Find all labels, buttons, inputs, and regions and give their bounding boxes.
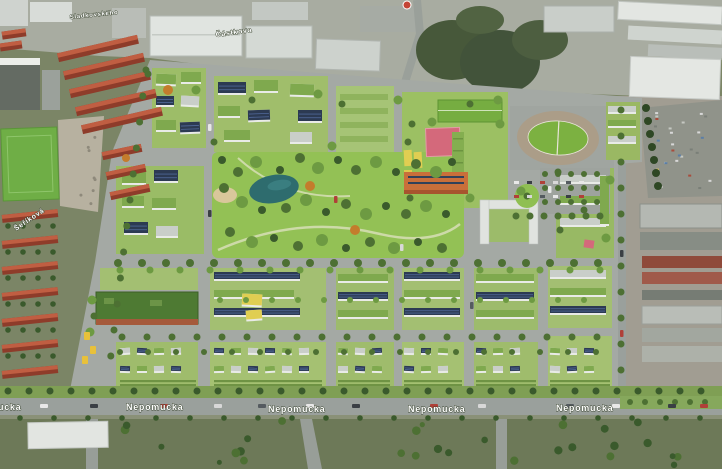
tree [357,267,364,274]
car [620,250,624,257]
building [404,272,460,281]
tree [397,349,403,355]
tree [319,334,326,341]
gravel [93,136,96,139]
building [476,310,534,319]
building [246,309,263,321]
building [550,366,560,374]
tree [278,388,285,395]
tree [450,259,458,267]
tree [370,156,382,168]
parked-car [579,181,584,184]
tree [593,349,599,355]
tree [219,334,226,341]
tree [107,353,114,360]
tree [466,194,475,203]
tree [569,334,576,341]
gravel [79,194,82,197]
tree [581,185,587,191]
tree [618,107,625,114]
tree [618,315,625,322]
scrap-car [690,148,693,150]
tree [606,452,614,460]
tree [123,422,131,430]
tree [240,457,248,465]
car [478,404,486,408]
building [156,74,176,87]
tree [391,415,397,421]
tree [207,267,214,274]
tree [618,367,625,374]
tree [270,234,278,242]
tree [670,453,676,459]
tree [50,275,56,281]
tree [627,399,633,405]
tree [411,159,421,169]
tree [412,452,420,460]
tree [597,267,604,274]
tree [341,199,351,209]
tree [544,334,551,341]
tree [434,445,442,453]
tree [133,145,140,152]
aerial-masterplan-view: Nepomucka Nepomucka Nepomucka Nepomucka … [0,0,722,469]
tree [420,200,432,212]
car [548,186,552,193]
tree [572,388,579,395]
tree [17,415,23,421]
tree [215,388,222,395]
tree [618,289,625,296]
scrap-car [671,143,674,145]
building [180,122,200,135]
tree [394,96,403,105]
tree [503,297,509,303]
tree [293,241,303,251]
tree [474,259,482,267]
tree [117,275,124,282]
tree [594,259,602,267]
tree [568,199,574,205]
tree [509,349,515,355]
tree [581,207,588,214]
tree [671,462,677,468]
car [620,330,624,337]
tree [425,297,431,303]
tree [409,121,416,128]
hedge [404,380,462,382]
tree [657,399,663,405]
tree [276,166,284,174]
building [493,348,503,355]
hedge [476,380,536,382]
tree [341,349,347,355]
tree [537,349,543,355]
car [258,404,266,408]
building [338,292,388,301]
tree [20,275,26,281]
building [404,348,414,355]
tree [243,297,249,303]
tree [493,415,499,421]
scrap-car [669,127,672,129]
hedge [476,384,536,386]
tree [697,415,703,421]
tree [269,334,276,341]
tree [634,419,642,427]
tree [428,118,437,127]
tree [594,334,601,341]
tree [120,249,127,256]
tree [498,259,506,267]
tree [546,259,554,267]
tree [35,353,41,359]
building [181,96,200,108]
tree [145,349,151,355]
building [152,198,176,210]
tree [561,415,567,421]
tree [162,259,170,267]
tree [507,267,514,274]
building [476,274,534,283]
tree [467,388,474,395]
tree [618,159,625,166]
tree [35,249,41,255]
tree [557,227,564,234]
tree [236,196,248,208]
tree [594,171,600,177]
tree [139,93,146,100]
tree [305,181,315,191]
tree [233,167,243,177]
tree [341,388,348,395]
tree [407,195,414,202]
tree [629,415,635,421]
tree [299,388,306,395]
street-label-nepomucka: Nepomucka [408,404,466,414]
tree [509,388,516,395]
tree [555,199,561,205]
tree [581,297,587,303]
tree [114,301,121,308]
tree [114,259,122,267]
tree [50,223,56,229]
tree [295,297,301,303]
tree [110,388,117,395]
tree [320,388,327,395]
hedge [338,384,390,386]
tree [614,388,621,395]
scrap-car [664,162,667,164]
tree [459,415,465,421]
tree [542,185,548,191]
tree [618,185,625,192]
tree [5,275,11,281]
tree [158,444,164,450]
tree [594,185,600,191]
tree [201,349,207,355]
tree [314,90,323,99]
building [248,110,270,123]
tree [258,206,266,214]
tree [144,334,151,341]
building [338,274,388,283]
tree [258,259,266,267]
tree [447,267,454,274]
side-street [496,419,507,469]
scrap-car [701,137,704,139]
tree [618,237,625,244]
tree [565,349,571,355]
tree [481,437,488,444]
tree [527,213,534,220]
tree [249,97,256,104]
tree [186,259,194,267]
tree [285,349,291,355]
scrap-car [697,131,700,133]
hedge [550,384,610,386]
car [352,404,360,408]
building [338,310,388,319]
tree [300,194,312,206]
tree [169,334,176,341]
tree [494,334,501,341]
building [510,366,520,373]
tree [152,388,159,395]
building [156,96,174,107]
tree [529,297,535,303]
scrap-car [655,118,658,120]
scrap-car [708,180,711,182]
tree [89,388,96,395]
street-label-nepomucka: Nepomucka [556,403,614,413]
tree [289,415,295,421]
building [254,80,278,93]
tree [143,67,150,74]
tree [20,353,26,359]
hedge [214,384,322,386]
tree [237,267,244,274]
building [282,366,292,373]
tree [117,267,124,274]
tree [365,237,375,247]
construction-vehicle [84,332,90,340]
tree [357,415,363,421]
tree [5,249,11,255]
tree [654,182,662,190]
tree [602,234,611,243]
tree [635,388,642,395]
scrap-car [655,112,658,114]
tree [369,334,376,341]
tree [347,297,353,303]
chimney [403,1,411,9]
tree [218,156,226,164]
building [154,348,164,355]
tree [453,349,459,355]
tree [221,415,227,421]
tree [147,267,154,274]
parked-car [553,181,558,184]
building [218,106,240,118]
tree [354,259,362,267]
tree [555,297,561,303]
car [208,210,212,217]
tree [119,334,126,341]
building [156,226,178,238]
car [334,196,338,203]
car [40,404,48,408]
building [290,132,312,144]
tree [244,435,251,442]
tree [425,415,431,421]
car [214,404,222,408]
tree [618,133,625,140]
tree [392,168,400,176]
hedge [214,380,322,382]
tree [394,334,401,341]
tree [399,297,405,303]
hedge [404,384,462,386]
tree [330,259,338,267]
tree [257,388,264,395]
tree [255,415,261,421]
tree [20,327,26,333]
tree [250,156,262,168]
building [120,366,130,373]
tree [334,156,342,164]
tree [91,313,98,320]
building [404,308,460,317]
building [156,120,176,132]
scrap-car [654,125,657,127]
tree [643,439,651,447]
building [404,290,460,299]
supermarket-green-roof [96,292,198,325]
tree [339,101,346,108]
tree [530,388,537,395]
tree [527,415,533,421]
tree [644,117,652,125]
tree [138,259,146,267]
tree [117,349,123,355]
tree [217,297,223,303]
tree [20,301,26,307]
tree [225,227,235,237]
tree [231,448,240,457]
parked-car [527,181,532,184]
building [584,348,594,355]
tree [417,267,424,274]
gravel [92,189,95,192]
tree [414,238,422,246]
building [355,366,365,374]
tree [567,267,574,274]
tree [383,388,390,395]
scrap-car [696,152,699,154]
tree [397,449,405,457]
tree [278,417,286,425]
tree [594,199,600,205]
tree [306,259,314,267]
tree [568,171,574,177]
building [214,272,300,281]
parked-car [540,195,545,198]
scrap-car [682,122,685,124]
tree [282,259,290,267]
tree [601,425,609,433]
tree [50,301,56,307]
tree [405,139,412,146]
building [231,366,241,373]
street-label-nepomucka: Nepomucka [0,402,22,412]
tree [297,267,304,274]
building [567,366,577,374]
building [265,348,275,355]
tree [187,415,193,421]
scrap-car [700,113,703,115]
gravel [89,202,92,205]
parked-car [553,195,558,198]
tree [618,341,625,348]
tree [85,415,91,421]
tree [648,143,656,151]
building [608,120,636,128]
tree [5,353,11,359]
tree [360,208,372,220]
building [372,366,382,373]
hedge [120,380,196,382]
car [90,404,98,408]
tree [123,223,130,230]
tree [583,213,590,220]
tree [402,259,410,267]
building [248,366,258,373]
building [214,366,224,373]
tree [68,388,75,395]
building [476,366,486,373]
tree [35,275,41,281]
aerial-map: Nepomucka Nepomucka Nepomucka Nepomucka … [0,0,722,469]
tree [312,162,324,174]
tree [229,349,235,355]
tree [362,388,369,395]
building [122,196,144,208]
tree [217,460,222,465]
tree [257,349,263,355]
tree [131,388,138,395]
parked-car [579,195,584,198]
tree [5,301,11,307]
car [400,244,404,251]
tree [323,415,329,421]
tree [373,297,379,303]
building [421,366,431,373]
tree [618,263,625,270]
tree [387,267,394,274]
tree [568,443,576,451]
tree [494,96,503,105]
parked-car [540,181,545,184]
tree [404,388,411,395]
tree [5,388,12,395]
tree [211,139,218,146]
tree [597,213,604,220]
tree [542,199,548,205]
tree [425,388,432,395]
tree [122,154,130,162]
scrap-car [688,175,691,177]
